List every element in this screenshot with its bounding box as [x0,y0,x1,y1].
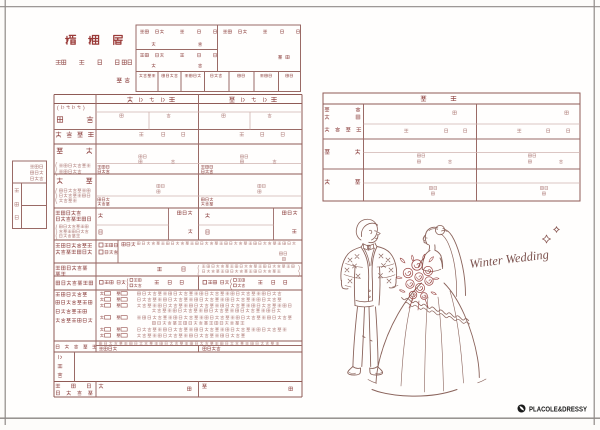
svg-text:PLACOLE&DRESSY: PLACOLE&DRESSY [529,407,587,414]
